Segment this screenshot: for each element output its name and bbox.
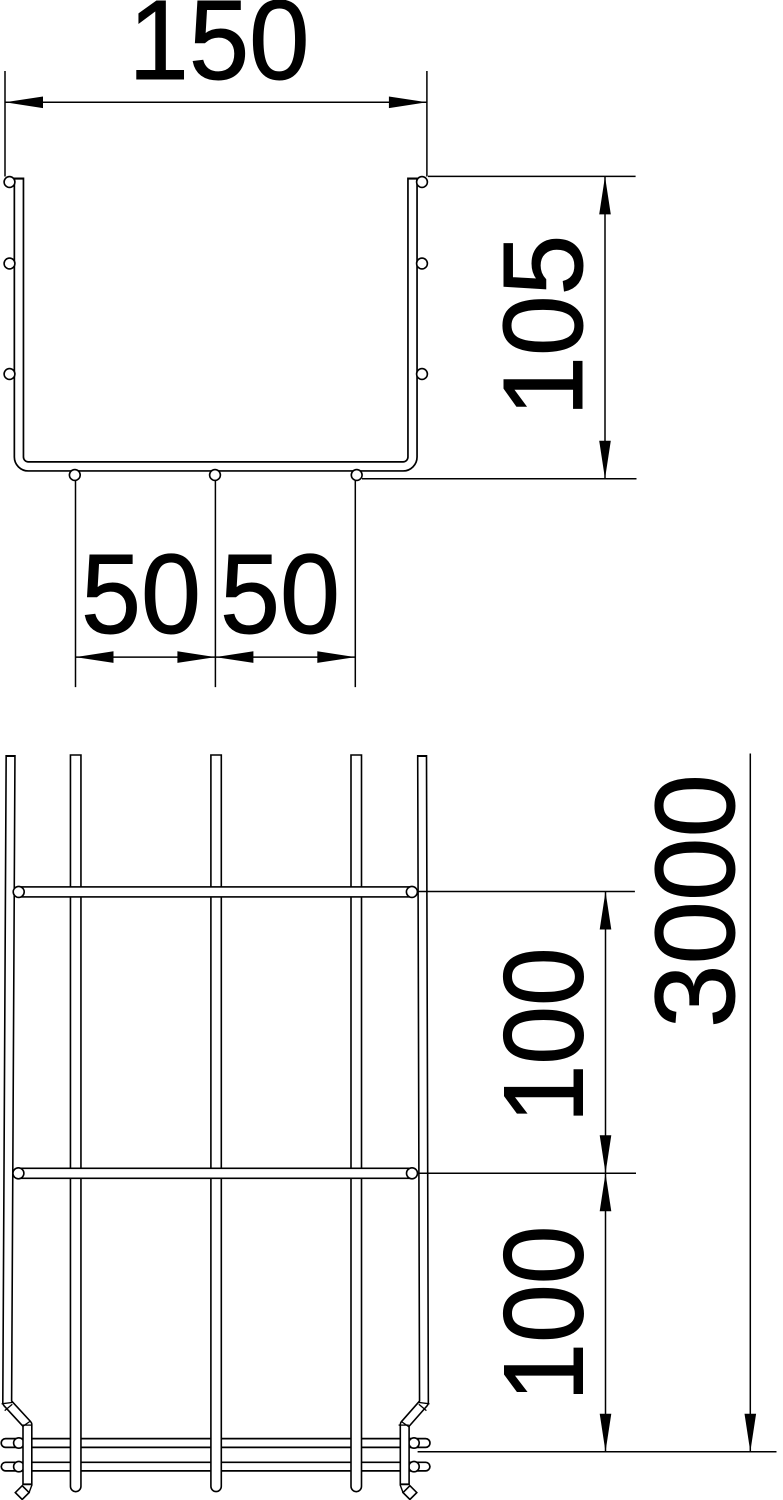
svg-text:50: 50 (81, 531, 201, 657)
svg-text:50: 50 (220, 531, 340, 657)
svg-text:100: 100 (480, 1226, 606, 1402)
svg-text:150: 150 (129, 0, 310, 103)
svg-text:3000: 3000 (632, 774, 758, 1028)
svg-text:100: 100 (480, 947, 606, 1123)
svg-text:105: 105 (480, 235, 606, 417)
